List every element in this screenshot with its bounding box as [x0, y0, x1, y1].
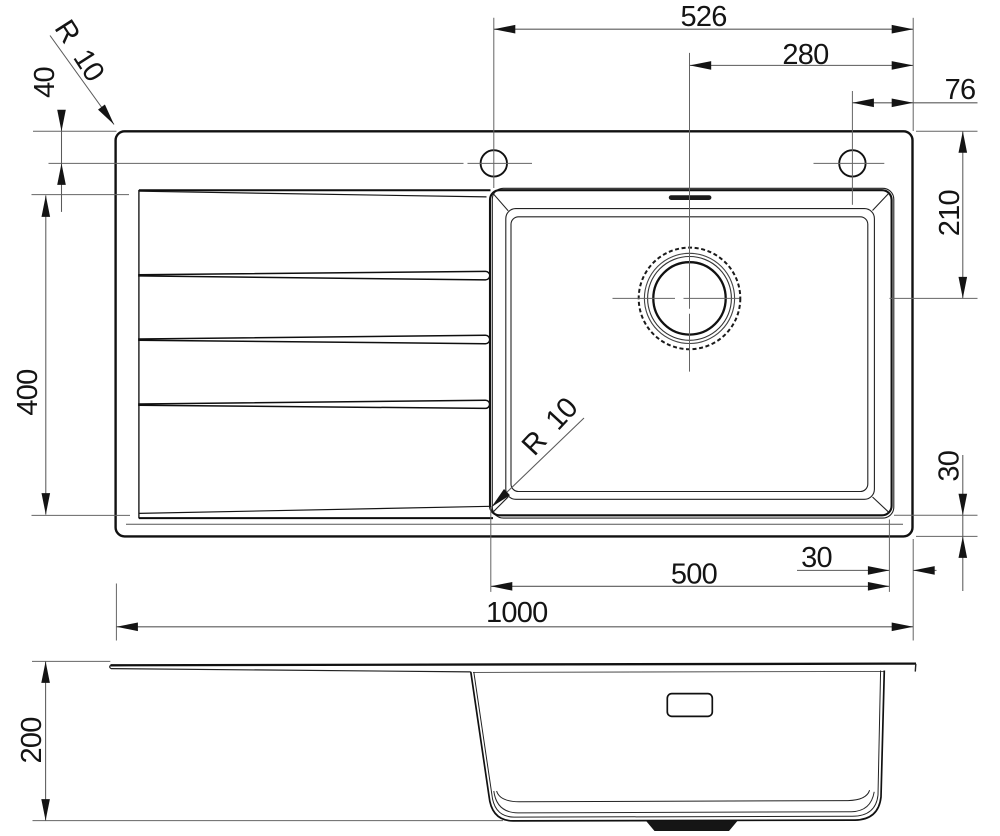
- svg-text:500: 500: [671, 559, 717, 591]
- svg-text:1000: 1000: [486, 597, 548, 629]
- svg-text:526: 526: [681, 1, 727, 33]
- svg-text:76: 76: [945, 74, 976, 106]
- svg-text:210: 210: [934, 190, 966, 236]
- svg-text:200: 200: [16, 717, 48, 763]
- svg-text:30: 30: [934, 451, 966, 482]
- svg-text:30: 30: [801, 542, 832, 574]
- svg-text:40: 40: [29, 67, 61, 98]
- svg-text:400: 400: [12, 370, 44, 416]
- svg-text:280: 280: [782, 39, 828, 71]
